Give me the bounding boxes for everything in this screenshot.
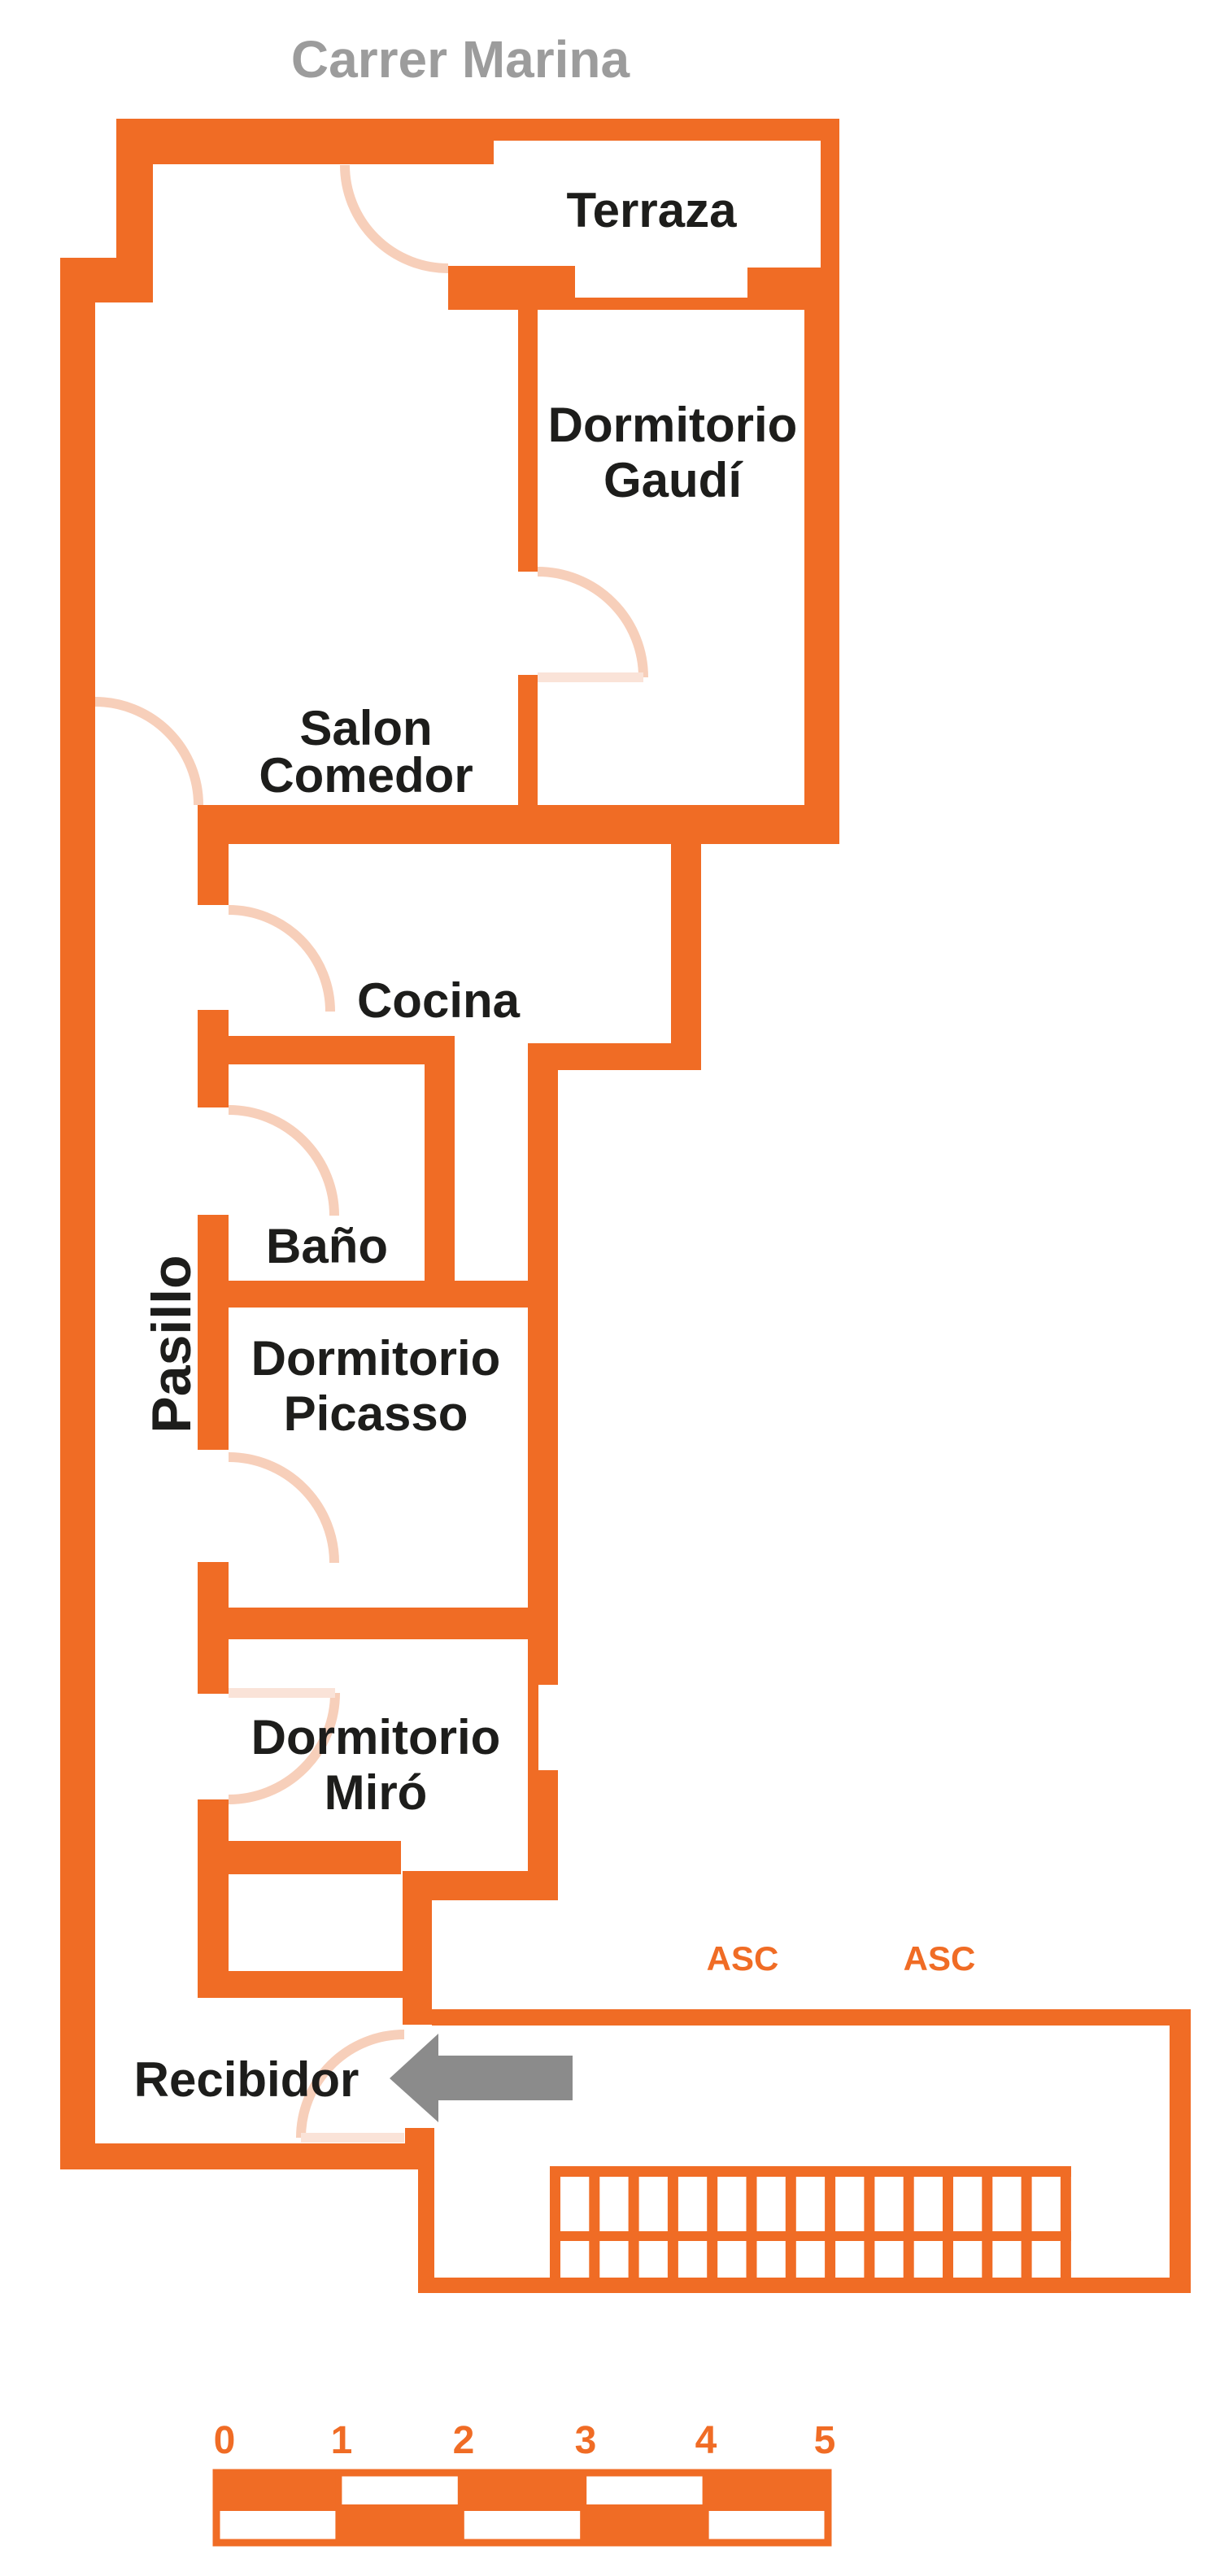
svg-text:3: 3 <box>575 2419 597 2462</box>
svg-text:4: 4 <box>695 2419 717 2462</box>
svg-text:Cocina: Cocina <box>357 973 521 1028</box>
svg-text:Dormitorio: Dormitorio <box>548 398 798 452</box>
svg-text:Miró: Miró <box>325 1765 428 1820</box>
svg-text:Comedor: Comedor <box>259 748 473 803</box>
svg-text:Carrer Marina: Carrer Marina <box>291 30 630 89</box>
svg-text:Gaudí: Gaudí <box>603 453 743 507</box>
svg-text:Picasso: Picasso <box>284 1386 468 1441</box>
svg-text:1: 1 <box>331 2419 353 2462</box>
svg-text:ASC: ASC <box>707 1939 779 1978</box>
svg-text:Recibidor: Recibidor <box>134 2052 359 2107</box>
svg-text:Dormitorio: Dormitorio <box>251 1331 501 1386</box>
svg-text:2: 2 <box>453 2419 475 2462</box>
svg-text:Baño: Baño <box>266 1219 388 1273</box>
svg-text:Salon: Salon <box>299 701 432 755</box>
svg-text:Dormitorio: Dormitorio <box>251 1710 501 1764</box>
svg-text:ASC: ASC <box>904 1939 976 1978</box>
svg-text:0: 0 <box>214 2419 236 2462</box>
svg-text:Pasillo: Pasillo <box>141 1255 203 1433</box>
svg-text:5: 5 <box>814 2419 836 2462</box>
svg-text:Terraza: Terraza <box>566 183 737 237</box>
